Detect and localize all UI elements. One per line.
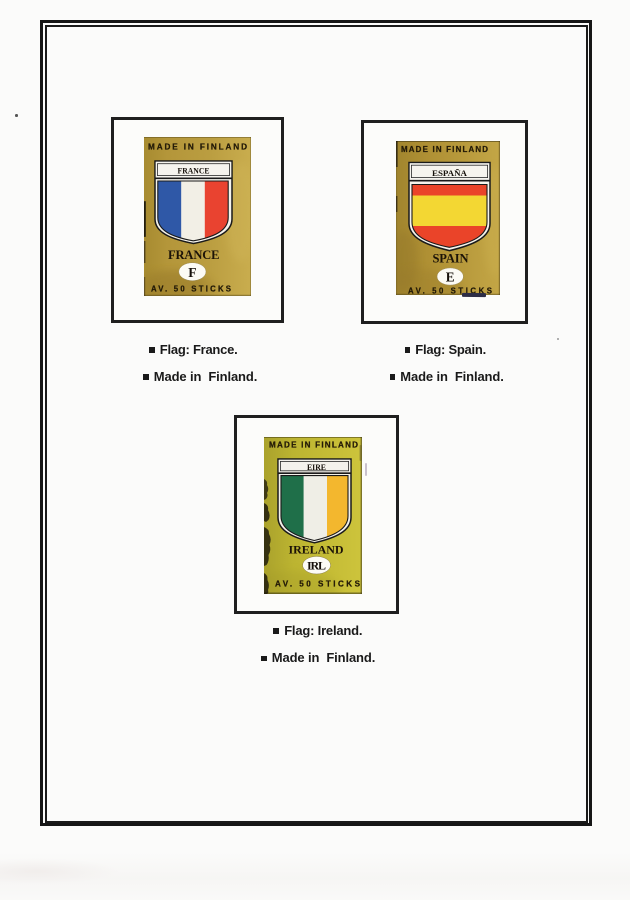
svg-text:FRANCE: FRANCE — [178, 166, 210, 176]
svg-text:MADE IN FINLAND: MADE IN FINLAND — [401, 144, 488, 153]
svg-text:IRELAND: IRELAND — [289, 543, 344, 557]
svg-text:SPAIN: SPAIN — [433, 251, 469, 265]
svg-text:EIRE: EIRE — [307, 462, 326, 472]
svg-text:FRANCE: FRANCE — [168, 248, 220, 262]
svg-text:MADE IN FINLAND: MADE IN FINLAND — [269, 440, 358, 449]
svg-text:E: E — [446, 269, 455, 284]
svg-text:IRL: IRL — [307, 559, 326, 573]
svg-text:F: F — [188, 265, 196, 280]
svg-text:ESPAÑA: ESPAÑA — [432, 167, 468, 177]
